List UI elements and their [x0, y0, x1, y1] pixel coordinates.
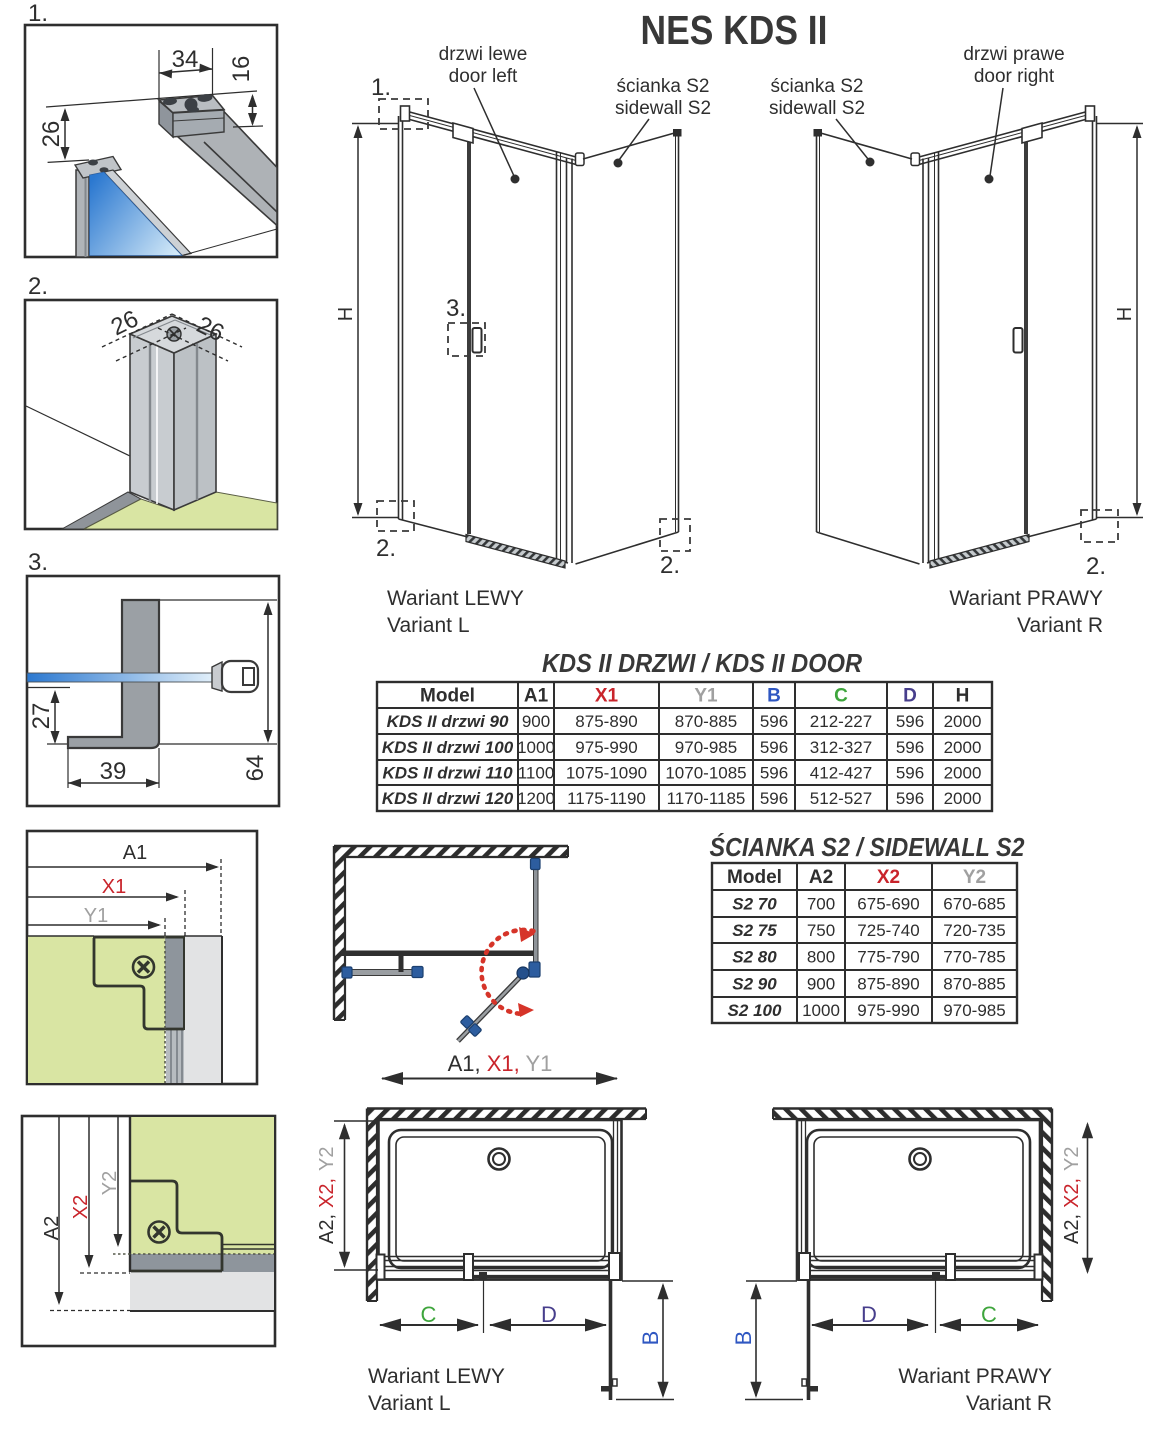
svg-text:A1: A1 [524, 686, 549, 707]
svg-text:875-890: 875-890 [857, 975, 919, 994]
svg-text:596: 596 [896, 764, 924, 783]
svg-text:39: 39 [100, 758, 127, 785]
svg-text:Y1: Y1 [84, 905, 108, 927]
svg-text:800: 800 [807, 948, 835, 967]
svg-text:drzwi lewe: drzwi lewe [439, 44, 528, 65]
svg-text:X1: X1 [102, 876, 126, 898]
svg-text:720-735: 720-735 [943, 921, 1005, 940]
svg-text:900: 900 [522, 712, 550, 731]
svg-text:ŚCIANKA S2 / SIDEWALL S2: ŚCIANKA S2 / SIDEWALL S2 [710, 832, 1025, 862]
svg-text:1170-1185: 1170-1185 [667, 789, 746, 808]
svg-text:Wariant PRAWY: Wariant PRAWY [898, 1365, 1052, 1388]
svg-text:596: 596 [896, 712, 924, 731]
svg-text:725-740: 725-740 [857, 921, 919, 940]
svg-text:212-227: 212-227 [810, 712, 872, 731]
svg-text:Variant L: Variant L [368, 1392, 451, 1415]
svg-text:Y2: Y2 [963, 867, 986, 888]
svg-text:2.: 2. [376, 535, 396, 562]
svg-text:596: 596 [760, 712, 788, 731]
svg-text:A2,: A2, [1061, 1214, 1083, 1244]
svg-text:ścianka S2: ścianka S2 [617, 76, 710, 97]
svg-text:X2: X2 [877, 867, 900, 888]
svg-text:3.: 3. [28, 549, 48, 576]
svg-text:C: C [981, 1302, 997, 1327]
svg-text:512-527: 512-527 [810, 789, 872, 808]
svg-text:26: 26 [38, 121, 65, 148]
svg-text:B: B [731, 1331, 756, 1346]
svg-text:D: D [861, 1302, 877, 1327]
svg-text:C: C [421, 1302, 437, 1327]
svg-text:596: 596 [760, 764, 788, 783]
svg-text:S2 80: S2 80 [732, 948, 777, 967]
svg-text:X2,: X2, [316, 1178, 338, 1208]
svg-text:D: D [903, 686, 917, 707]
svg-text:S2 90: S2 90 [732, 975, 777, 994]
svg-text:NES KDS II: NES KDS II [641, 7, 828, 53]
svg-text:1100: 1100 [518, 764, 555, 783]
svg-text:door left: door left [449, 66, 518, 87]
svg-text:B: B [767, 686, 781, 707]
svg-text:975-990: 975-990 [857, 1001, 919, 1020]
svg-text:1070-1085: 1070-1085 [665, 764, 746, 783]
svg-text:C: C [834, 686, 848, 707]
svg-text:S2 70: S2 70 [732, 895, 777, 914]
svg-text:X1: X1 [595, 686, 619, 707]
svg-text:870-885: 870-885 [675, 712, 737, 731]
svg-text:2000: 2000 [944, 789, 982, 808]
svg-text:sidewall S2: sidewall S2 [615, 98, 711, 119]
svg-text:2000: 2000 [944, 764, 982, 783]
svg-text:Wariant LEWY: Wariant LEWY [368, 1365, 505, 1388]
svg-text:1200: 1200 [517, 789, 555, 808]
svg-text:KDS II drzwi 110: KDS II drzwi 110 [382, 764, 513, 783]
svg-text:1.: 1. [28, 0, 48, 27]
svg-text:412-427: 412-427 [810, 764, 872, 783]
svg-text:A1: A1 [123, 842, 147, 864]
svg-text:1075-1090: 1075-1090 [566, 764, 647, 783]
svg-text:670-685: 670-685 [943, 895, 1005, 914]
svg-text:770-785: 770-785 [943, 948, 1005, 967]
svg-text:1.: 1. [371, 74, 391, 101]
svg-text:2000: 2000 [944, 712, 982, 731]
svg-text:D: D [541, 1302, 557, 1327]
svg-text:900: 900 [807, 975, 835, 994]
svg-text:KDS II DRZWI / KDS II DOOR: KDS II DRZWI / KDS II DOOR [542, 648, 862, 678]
svg-text:Y1: Y1 [694, 686, 718, 707]
svg-text:2.: 2. [1086, 553, 1106, 580]
svg-text:A2,: A2, [316, 1214, 338, 1244]
svg-text:64: 64 [242, 755, 269, 782]
svg-text:596: 596 [896, 789, 924, 808]
svg-text:KDS II drzwi 90: KDS II drzwi 90 [387, 712, 509, 731]
svg-text:Variant L: Variant L [387, 614, 470, 637]
svg-text:750: 750 [807, 921, 835, 940]
svg-text:700: 700 [807, 895, 835, 914]
svg-text:875-890: 875-890 [575, 712, 637, 731]
svg-text:596: 596 [896, 738, 924, 757]
svg-text:Wariant LEWY: Wariant LEWY [387, 587, 524, 610]
svg-text:door right: door right [974, 66, 1055, 87]
svg-text:X2,: X2, [1061, 1178, 1083, 1208]
svg-text:H: H [1114, 307, 1136, 321]
svg-text:596: 596 [760, 738, 788, 757]
svg-text:Model: Model [420, 686, 475, 707]
svg-text:S2 100: S2 100 [728, 1001, 782, 1020]
svg-text:sidewall S2: sidewall S2 [769, 98, 865, 119]
svg-text:1000: 1000 [802, 1001, 840, 1020]
svg-text:16: 16 [228, 56, 255, 83]
svg-text:975-990: 975-990 [575, 738, 637, 757]
svg-text:B: B [638, 1331, 663, 1346]
svg-text:Y2: Y2 [316, 1147, 338, 1171]
svg-text:Model: Model [727, 867, 782, 888]
svg-text:675-690: 675-690 [857, 895, 919, 914]
svg-text:1000: 1000 [517, 738, 555, 757]
svg-text:H: H [956, 686, 970, 707]
svg-text:2.: 2. [660, 552, 680, 579]
svg-text:2000: 2000 [944, 738, 982, 757]
svg-text:KDS II drzwi 100: KDS II drzwi 100 [382, 738, 514, 757]
svg-text:970-985: 970-985 [675, 738, 737, 757]
svg-text:312-327: 312-327 [810, 738, 872, 757]
svg-text:970-985: 970-985 [943, 1001, 1005, 1020]
svg-text:27: 27 [28, 703, 55, 730]
svg-text:KDS II drzwi 120: KDS II drzwi 120 [382, 789, 514, 808]
svg-text:H: H [335, 307, 357, 321]
svg-text:Variant R: Variant R [966, 1392, 1052, 1415]
svg-text:596: 596 [760, 789, 788, 808]
svg-text:3.: 3. [446, 295, 466, 322]
svg-text:Wariant PRAWY: Wariant PRAWY [949, 587, 1103, 610]
svg-text:1175-1190: 1175-1190 [567, 789, 646, 808]
svg-text:34: 34 [172, 46, 199, 73]
svg-text:870-885: 870-885 [943, 975, 1005, 994]
svg-text:Variant R: Variant R [1017, 614, 1103, 637]
svg-text:A1, X1, Y1: A1, X1, Y1 [448, 1051, 553, 1076]
svg-text:775-790: 775-790 [857, 948, 919, 967]
svg-text:S2 75: S2 75 [732, 921, 777, 940]
svg-text:A2: A2 [809, 867, 833, 888]
svg-text:2.: 2. [28, 273, 48, 300]
svg-text:Y2: Y2 [1061, 1147, 1083, 1171]
svg-text:drzwi prawe: drzwi prawe [963, 44, 1064, 65]
svg-text:ścianka S2: ścianka S2 [771, 76, 864, 97]
